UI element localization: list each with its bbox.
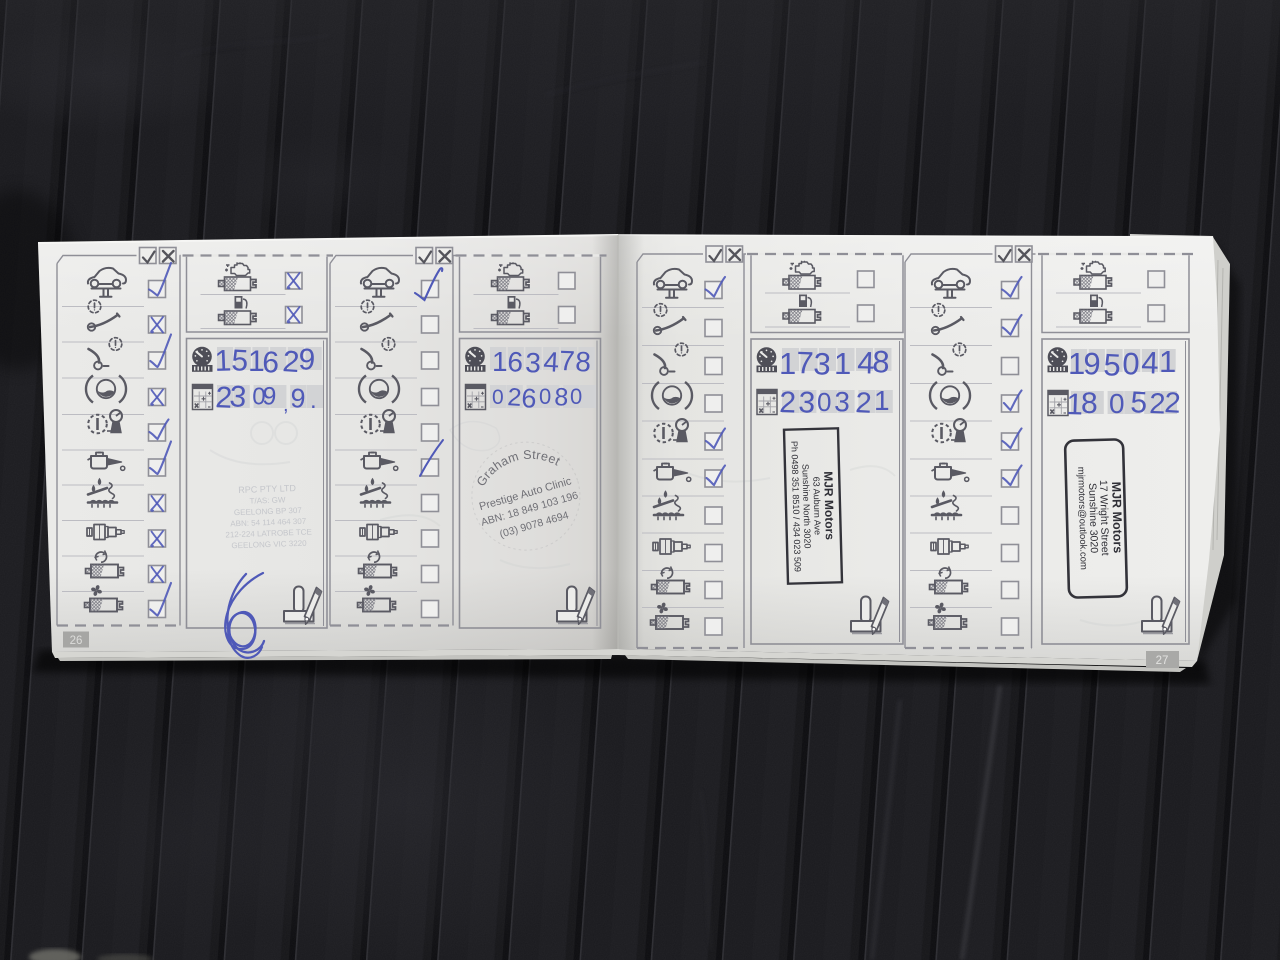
svg-text:2: 2 (779, 386, 797, 420)
svg-text:8: 8 (1081, 387, 1098, 420)
svg-text:27: 27 (1156, 655, 1169, 667)
svg-text:1: 1 (834, 346, 851, 381)
svg-text:3: 3 (229, 380, 248, 414)
svg-text:6: 6 (507, 346, 524, 378)
svg-text:0: 0 (539, 384, 551, 409)
svg-text:3: 3 (834, 386, 851, 418)
svg-text:9: 9 (298, 343, 316, 377)
svg-text:5: 5 (1130, 386, 1148, 420)
svg-text:1: 1 (214, 344, 232, 378)
svg-text:3: 3 (813, 346, 832, 382)
svg-text:9: 9 (262, 382, 277, 411)
svg-text:9: 9 (290, 383, 307, 414)
svg-text:2: 2 (1164, 387, 1182, 420)
svg-text:5: 5 (1103, 347, 1122, 383)
svg-text:7: 7 (559, 345, 576, 377)
svg-text:T/AS: GW: T/AS: GW (249, 495, 286, 505)
svg-text:5: 5 (231, 344, 249, 378)
svg-text:0: 0 (1122, 346, 1140, 382)
svg-text:26: 26 (70, 635, 83, 647)
svg-text:1: 1 (779, 346, 796, 381)
svg-text:6: 6 (521, 383, 538, 414)
svg-text:,: , (283, 394, 289, 416)
svg-text:4: 4 (1141, 345, 1159, 381)
svg-text:0: 0 (1109, 388, 1125, 419)
svg-text:.: . (310, 387, 317, 414)
svg-text:3: 3 (798, 386, 816, 420)
svg-text:9: 9 (1083, 346, 1101, 382)
svg-text:0: 0 (492, 386, 504, 409)
svg-text:RPC PTY LTD: RPC PTY LTD (238, 483, 296, 495)
svg-text:4: 4 (543, 346, 560, 378)
svg-text:0: 0 (570, 384, 582, 409)
svg-text:8: 8 (872, 344, 890, 380)
svg-text:3: 3 (525, 347, 542, 379)
svg-text:8: 8 (575, 346, 592, 378)
svg-text:8: 8 (554, 383, 569, 412)
svg-text:6: 6 (262, 346, 280, 380)
svg-text:1: 1 (874, 385, 890, 416)
svg-text:0: 0 (817, 387, 831, 417)
svg-text:2: 2 (855, 387, 873, 420)
svg-text:1: 1 (1159, 344, 1176, 379)
svg-text:1: 1 (492, 346, 508, 377)
svg-text:7: 7 (796, 345, 814, 381)
